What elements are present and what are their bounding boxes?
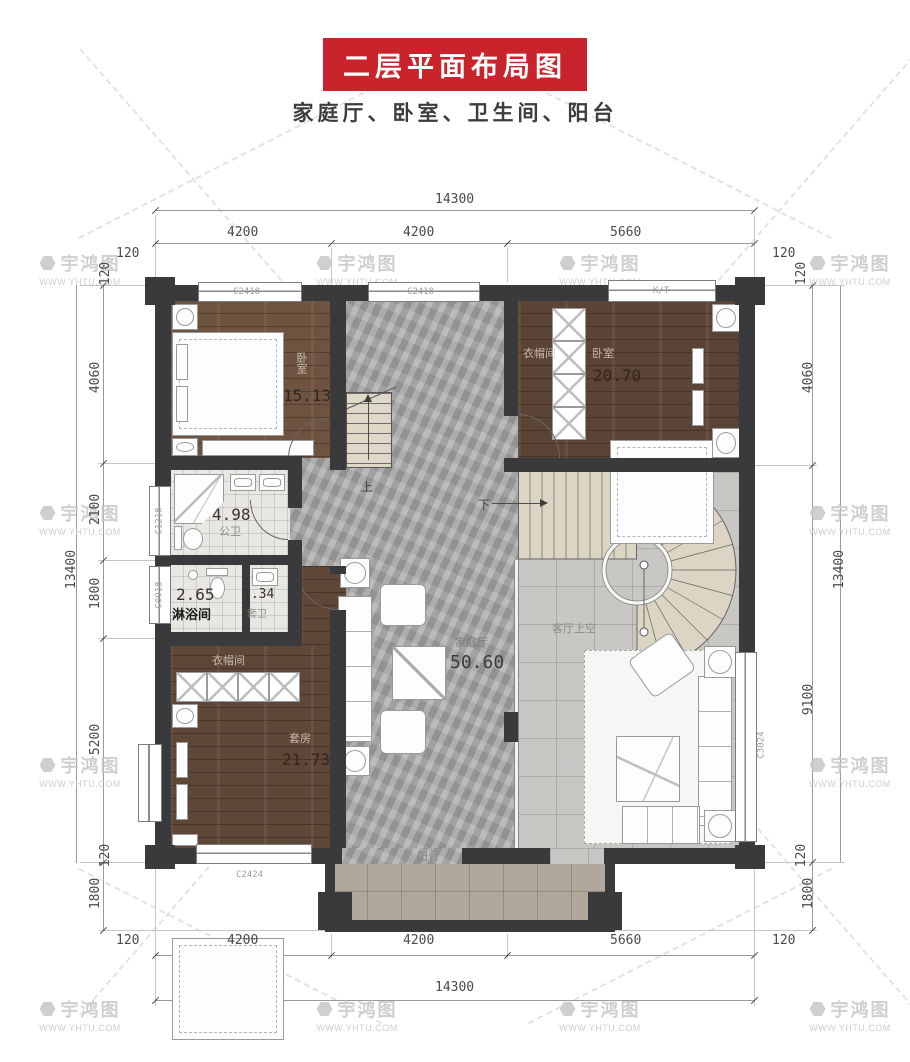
watermark: 宇鸿图WWW.YHTU.COM (20, 500, 140, 537)
pillow (176, 784, 188, 820)
room-label-bedroom-tl: 卧室 (293, 352, 309, 374)
closet-cell (552, 407, 586, 440)
ext-line (331, 248, 332, 282)
yhtu-logo-hexagon (810, 256, 826, 270)
yhtu-logo-hexagon (810, 1002, 826, 1016)
stair-up-arrowhead (364, 394, 372, 402)
dim-label: 14300 (435, 192, 474, 207)
yhtu-logo-hexagon (317, 1002, 333, 1016)
ext-line (507, 248, 508, 282)
sink (230, 474, 256, 491)
corner-cap (735, 277, 765, 305)
dim-label: 120 (794, 262, 809, 285)
ext-line (98, 930, 325, 931)
closet-cell (552, 308, 586, 341)
dim-label: 13400 (832, 550, 847, 589)
yhtu-logo-hexagon (40, 506, 56, 520)
toilet-tank (174, 526, 182, 550)
room-area-hall: 50.60 (450, 652, 504, 673)
room-area-bedroom-tl: 15.13 (283, 386, 331, 405)
wardrobe-cell (176, 672, 207, 702)
ext-line (98, 638, 155, 639)
yhtu-logo-hexagon (40, 1002, 56, 1016)
dim-label: 5660 (610, 933, 641, 948)
watermark: 宇鸿图WWW.YHTU.COM (540, 996, 660, 1033)
dim-label: 2100 (88, 494, 103, 525)
watermark: 宇鸿图WWW.YHTU.COM (20, 752, 140, 789)
ext-line (80, 285, 155, 286)
dim-label: 4060 (88, 362, 103, 393)
nightstand (172, 304, 198, 330)
room-label-suite: 套房 (289, 730, 311, 746)
watermark: 宇鸿图WWW.YHTU.COM (790, 752, 910, 789)
watermark: 宇鸿图WWW.YHTU.COM (297, 996, 417, 1033)
window-label: C0918 (155, 581, 165, 608)
dim-label: 4200 (403, 225, 434, 240)
room-label-ensuite: 套卫 (247, 605, 267, 620)
pillow (176, 344, 188, 380)
ext-line (80, 862, 155, 863)
ext-line (155, 866, 156, 1006)
room-label-void: 客厅上空 (552, 620, 596, 636)
wall-bath-shower-div (155, 555, 302, 565)
ext-line (755, 465, 817, 466)
room-label-bath: 公卫 (219, 523, 241, 539)
nightstand (712, 428, 740, 458)
stair-down-arrow (492, 503, 542, 504)
wall-bottom-seg (604, 848, 755, 864)
page-title-banner: 二层平面布局图 (323, 38, 587, 91)
dim-label: 5660 (610, 225, 641, 240)
window-label: C2418 (233, 287, 260, 297)
balcony-rail-bottom (325, 920, 615, 932)
sink (252, 568, 278, 586)
ext-line (615, 930, 817, 931)
window-c3024 (735, 652, 757, 842)
dim-label: 4060 (801, 362, 816, 393)
yhtu-logo-hexagon (40, 256, 56, 270)
pillow (692, 390, 704, 426)
room-area-ensuite: 1.34 (243, 587, 274, 602)
closet-label-suite: 衣帽间 (212, 652, 245, 668)
ext-line (754, 215, 755, 281)
pillow (176, 386, 188, 422)
room-area-shower: 2.65 (176, 585, 215, 604)
room-label-bedroom-tr: 卧室 (592, 345, 614, 361)
wardrobe-cell (207, 672, 238, 702)
balcony-door-opening (342, 848, 462, 864)
room-label-balcony: 阳台 (417, 848, 439, 864)
dim-tick (751, 207, 758, 214)
watermark: 宇鸿图WWW.YHTU.COM (790, 996, 910, 1033)
floor-drain (188, 570, 198, 580)
watermark: 宇鸿图WWW.YHTU.COM (790, 500, 910, 537)
armchair (380, 710, 426, 754)
void-balcony-opening (550, 848, 604, 864)
dim-label: 120 (116, 933, 139, 948)
wall-suite-top (155, 632, 302, 646)
nightstand (712, 304, 740, 332)
stair-down-label: 下 (478, 496, 490, 513)
wall-void-stub (504, 712, 518, 742)
dim-label: 1800 (88, 878, 103, 909)
corner-cap (145, 845, 175, 869)
room-area-bath: 4.98 (212, 505, 251, 524)
window-suite-bay (138, 744, 162, 822)
dim-label: 120 (98, 262, 113, 285)
dim-label: 120 (772, 933, 795, 948)
room-area-bedroom-tr: 20.70 (593, 366, 641, 385)
armchair (380, 584, 426, 626)
dim-label: 1800 (801, 878, 816, 909)
stair-up-arrow (368, 400, 369, 460)
dim-label: 9100 (801, 684, 816, 715)
nightstand (172, 704, 198, 728)
wardrobe-cell (269, 672, 300, 702)
void-railing (514, 560, 519, 848)
closet-cell (552, 374, 586, 407)
dim-line-top-seg (155, 243, 755, 244)
dim-label: 14300 (435, 980, 474, 995)
nightstand (172, 438, 198, 456)
balcony-column (588, 892, 622, 930)
coffee-table (392, 646, 446, 700)
ext-line (98, 560, 155, 561)
window-c2424 (196, 844, 312, 864)
yhtu-logo-hexagon (560, 256, 576, 270)
dim-label: 120 (794, 844, 809, 867)
room-label-hall: 家庭厅 (455, 634, 488, 650)
dim-label: 120 (98, 844, 113, 867)
bed-suite (172, 938, 284, 1040)
plant-box (704, 646, 736, 678)
wall-suite-right (330, 610, 346, 848)
window-label: C3024 (757, 731, 767, 758)
wall-vestibule-jamb (330, 566, 346, 574)
wall-bedroomtl-right (330, 300, 346, 470)
floor-plan-page: 宇鸿图WWW.YHTU.COM 宇鸿图WWW.YHTU.COM 宇鸿图WWW.Y… (0, 0, 910, 1062)
balcony-column (318, 892, 352, 930)
window-label: C2418 (407, 287, 434, 297)
sink (259, 474, 285, 491)
plant-box (704, 810, 736, 842)
bed-tr (610, 440, 714, 544)
window-label: C1218 (155, 507, 165, 534)
corner-cap (145, 277, 175, 305)
dim-label: 1800 (88, 578, 103, 609)
page-subtitle: 家庭厅、卧室、卫生间、阳台 (293, 97, 618, 127)
dim-label: 4200 (227, 933, 258, 948)
wall-bedroomtl-bottom (155, 456, 302, 470)
yhtu-logo-hexagon (40, 758, 56, 772)
closet-label-tr: 衣帽间 (523, 345, 556, 361)
window-label: K/T (653, 286, 669, 296)
wardrobe-cell (238, 672, 269, 702)
ext-line (754, 866, 755, 1006)
sofa-living-right (698, 676, 732, 826)
dim-label: 5200 (88, 724, 103, 755)
dim-label: 120 (772, 246, 795, 261)
stair-down-arrowhead (540, 499, 548, 507)
dim-label: 13400 (64, 550, 79, 589)
dim-label: 120 (116, 246, 139, 261)
toilet-bowl (183, 528, 203, 550)
corner-cap (735, 845, 765, 869)
bed-tl (172, 332, 284, 436)
balcony-floor (333, 857, 607, 923)
toilet-tank (206, 568, 228, 576)
wall-bath-right-a (288, 470, 302, 508)
stair-up (346, 392, 392, 468)
room-area-suite: 21.73 (282, 750, 330, 769)
wall-bottom-seg (462, 848, 550, 864)
dim-label: 4200 (227, 225, 258, 240)
wall-bedroomtr-bottom (504, 458, 755, 472)
pillow (176, 742, 188, 778)
ext-line (155, 215, 156, 281)
stair-up-label: 上 (361, 478, 373, 495)
nightstand (172, 834, 198, 846)
sofa-living-bottom (622, 806, 700, 844)
window-label: C2424 (236, 870, 263, 880)
pillow (692, 348, 704, 384)
coffee-table-living (616, 736, 680, 802)
room-label-shower: 淋浴间 (172, 604, 211, 623)
ext-line (98, 463, 155, 464)
wall-bedroomtr-left (504, 300, 518, 416)
closet-cell (552, 341, 586, 374)
dim-line-top-total (155, 210, 755, 211)
dim-label: 4200 (403, 933, 434, 948)
